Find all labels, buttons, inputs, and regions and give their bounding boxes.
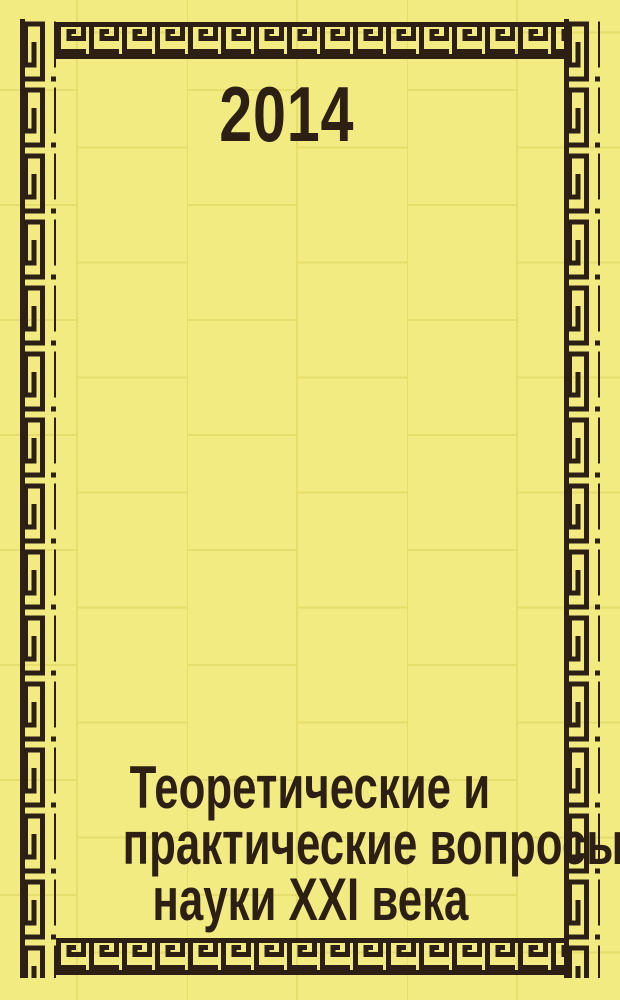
title-line-2: практические вопросы <box>123 816 620 872</box>
title-line-3: науки XXI века <box>152 872 468 928</box>
book-title: Теоретические и практические вопросы нау… <box>30 760 590 928</box>
greek-key-border-top-icon <box>56 22 564 59</box>
year-label: 2014 <box>0 80 574 148</box>
greek-key-border-bottom-icon <box>56 938 564 975</box>
title-line-1: Теоретические и <box>130 760 490 816</box>
year-text: 2014 <box>220 80 355 148</box>
book-cover: 2014 Теоретические и практические вопрос… <box>0 0 620 1000</box>
